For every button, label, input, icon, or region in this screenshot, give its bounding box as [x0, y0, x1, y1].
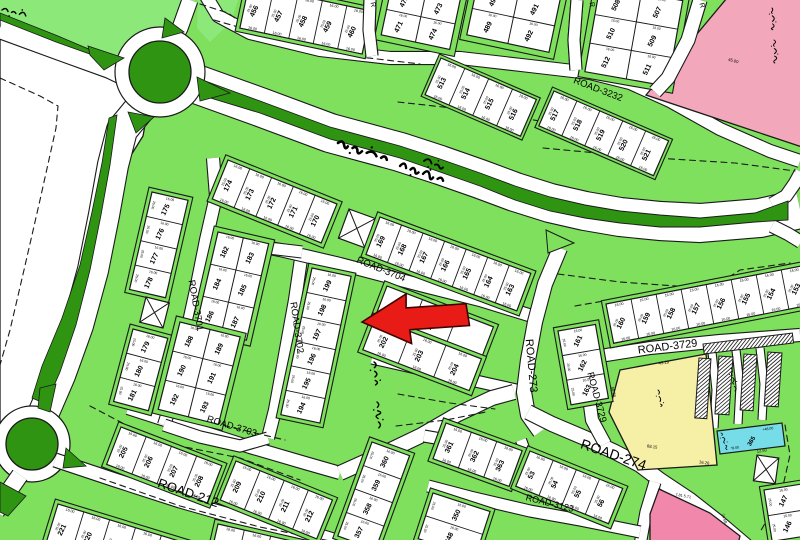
svg-text:25.00: 25.00 [118, 386, 124, 395]
svg-text:16.00: 16.00 [796, 302, 800, 308]
svg-text:25.00: 25.00 [139, 249, 145, 258]
